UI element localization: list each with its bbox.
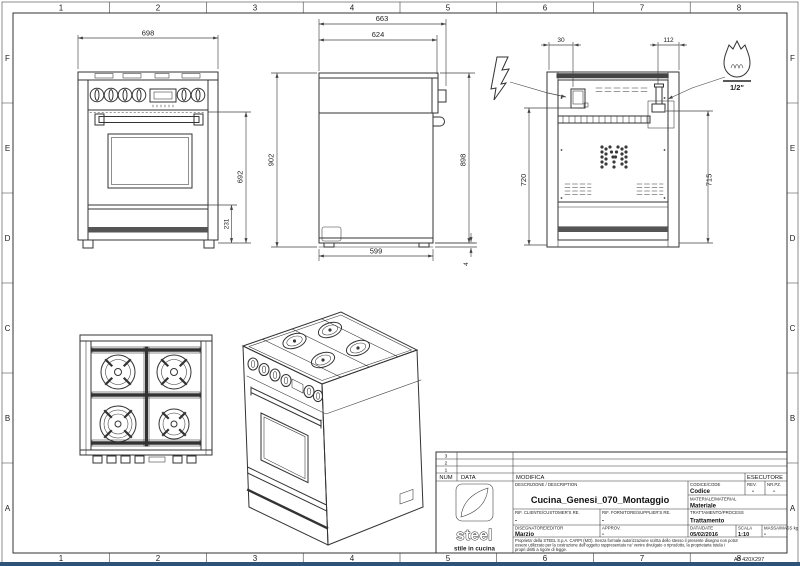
electrical-box (571, 89, 588, 108)
drawing-sheet: 1 2 3 4 5 6 7 8 1 2 3 4 5 6 7 8 F E D C … (0, 0, 800, 566)
back-view: 1/2" 30 112 720 715 (491, 37, 751, 247)
dim-front-height: 692 (236, 171, 245, 184)
front-knobs (90, 88, 205, 102)
side-dimensions (271, 19, 477, 261)
iso-label (400, 489, 413, 504)
grid-col-top-6: 6 (543, 4, 548, 13)
grid-col-bot-7: 7 (640, 554, 645, 563)
side-label (322, 227, 341, 241)
header-esecutore: ESECUTORE (747, 475, 783, 481)
rev-value: - (752, 489, 754, 495)
grid-col-top-2: 2 (156, 4, 161, 13)
massa-value: - (764, 532, 766, 538)
oven-window (108, 134, 192, 188)
rev-row-2: 2 (445, 460, 448, 466)
grid-row-left-F: F (5, 54, 10, 63)
grid-row-left-E: E (5, 144, 10, 153)
header-data: DATA (461, 475, 476, 481)
header-modifica: MODIFICA (516, 475, 544, 481)
grid-col-bot-3: 3 (253, 554, 258, 563)
grid-col-top-5: 5 (446, 4, 451, 13)
trattamento-value: Trattamento (690, 519, 725, 525)
dim-back-elec-offset: 30 (557, 37, 565, 44)
rev-row-1: 1 (445, 467, 448, 473)
dim-side-depth-base: 599 (370, 247, 383, 256)
grid-row-right-B: B (790, 414, 795, 423)
steel-logo-wordmark: steel (456, 527, 493, 544)
top-view-knobs (93, 456, 196, 463)
rev-row-3: 3 (445, 453, 448, 459)
data-label: DATA/DATE (690, 526, 713, 531)
rif-cliente-label: RIF. CLIENTE/CUSTOMER'S RE. (515, 510, 580, 515)
materiale-label: MATERIALE/MATERIAL (690, 497, 737, 502)
grid-col-bot-6: 6 (543, 554, 548, 563)
drawing-title: Cucina_Genesi_070_Montaggio (531, 495, 670, 505)
gas-connection (648, 84, 674, 128)
legal-line-3: propri diritti a rigore di legge. (515, 547, 567, 552)
dim-side-height-total: 902 (267, 154, 276, 167)
electricity-bolt-icon (491, 57, 509, 100)
grid-row-right-D: D (790, 234, 796, 243)
back-ornament (600, 145, 627, 168)
dim-back-elec-height: 720 (519, 174, 528, 187)
iso-burners (281, 319, 372, 370)
window-bottom-edge (0, 562, 800, 566)
grid-row-right-A: A (790, 504, 796, 513)
nrpz-label: NR.PZ. (767, 482, 781, 487)
burner-top-left (101, 355, 135, 389)
grid-row-right-E: E (790, 144, 795, 153)
grid-row-right-C: C (790, 324, 796, 333)
grid-col-bot-1: 1 (59, 554, 64, 563)
grid-row-left-B: B (5, 414, 10, 423)
approv-label: APPROV. (602, 526, 621, 531)
scala-label: SCALA (738, 526, 752, 531)
codice-value: Codice (690, 489, 711, 495)
dim-side-height-body: 898 (459, 154, 468, 167)
grid-row-right-F: F (790, 54, 795, 63)
back-vents (565, 184, 663, 195)
dim-side-depth-top: 624 (372, 30, 385, 39)
grid-col-top-4: 4 (350, 4, 355, 13)
title-block: 3 2 1 NUM DATA MODIFICA ESECUTORE DESCRI… (436, 452, 799, 553)
grid-col-bot-5: 5 (446, 554, 451, 563)
grid-col-top-7: 7 (640, 4, 645, 13)
grid-col-top-8: 8 (737, 4, 742, 13)
grid-col-bot-4: 4 (350, 554, 355, 563)
oven-handle (95, 114, 203, 125)
steel-logo-tagline: stile in cucina (454, 546, 495, 553)
burner-bottom-right (159, 409, 189, 439)
dim-front-width: 698 (142, 29, 155, 38)
codice-label: CODICE/CODE (690, 482, 720, 487)
grid-row-left-C: C (5, 324, 11, 333)
rif-fornitore-label: RIF. FORNITORE/SUPPLIER'S RE. (602, 510, 671, 515)
grid-row-left-A: A (5, 504, 11, 513)
burner-top-right (157, 355, 191, 389)
grid-col-top-3: 3 (253, 4, 258, 13)
grid-row-left-D: D (5, 234, 11, 243)
trattamento-label: TRATTAMENTO/PROCESS (690, 510, 744, 515)
approv-value: - (602, 532, 604, 538)
gas-flame-icon (723, 41, 751, 81)
grid-col-bot-2: 2 (156, 554, 161, 563)
steel-logo: steel stile in cucina (454, 484, 495, 553)
burner-bottom-left-wok (100, 406, 136, 442)
nrpz-value: - (773, 489, 775, 495)
massa-label: MASSA/MASS kg (764, 526, 799, 531)
side-knob (438, 90, 446, 102)
disegnatore-label: DISEGNATORE/EDITOR (515, 526, 563, 531)
dim-front-plinth: 231 (224, 218, 231, 229)
isometric-view (243, 312, 423, 545)
dim-back-gas-height: 715 (705, 174, 714, 187)
dim-side-depth-total: 663 (376, 14, 389, 23)
disegnatore-value: Marzio (515, 532, 534, 538)
rif-cliente-value: - (515, 519, 517, 525)
front-dimensions (78, 35, 251, 243)
description-label: DESCRIZIONE / DESCRIPTION (515, 482, 577, 487)
mounting-rail (558, 116, 650, 123)
rev-label: REV. (747, 482, 757, 487)
side-view: 663 624 902 898 599 4 (267, 14, 478, 266)
side-handle (433, 117, 445, 126)
scala-value: 1:10 (738, 532, 749, 538)
dim-side-foot-gap: 4 (463, 262, 470, 266)
data-value: 05/02/2016 (690, 532, 718, 538)
front-display (150, 89, 176, 107)
gas-size-label: 1/2" (730, 83, 744, 92)
grid-col-top-1: 1 (59, 4, 64, 13)
iso-window (261, 413, 308, 483)
header-num: NUM (439, 475, 452, 481)
top-view (80, 335, 212, 463)
dim-back-gas-offset: 112 (663, 37, 674, 44)
rif-fornitore-value: - (602, 519, 604, 525)
materiale-value: Materiale (690, 504, 717, 510)
front-view: 698 692 231 (78, 29, 251, 249)
